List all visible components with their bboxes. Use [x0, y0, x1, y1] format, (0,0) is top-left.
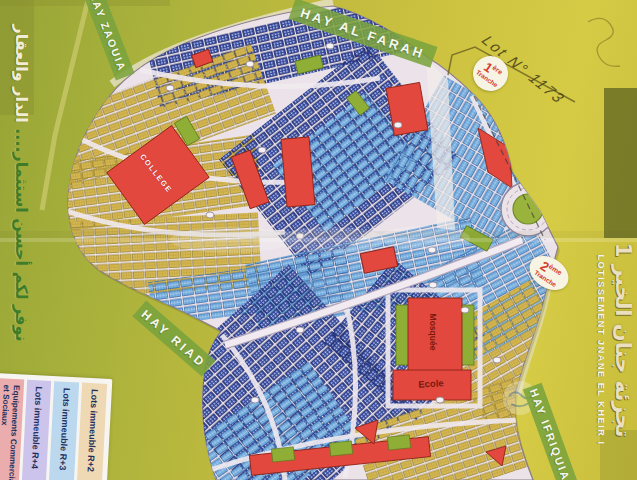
- legend-item-r4: Lots immeuble R+4: [21, 380, 52, 480]
- legend-item-r2: Lots immeuble R+2: [76, 383, 107, 480]
- map-title-arabic: تجزئة جنان الخير 1: [605, 200, 635, 480]
- folded-map-photo: HAY AL FARAH HAY ZAOUIA HAY RIAD HAY IFR…: [0, 0, 637, 480]
- legend-item-equipements: Equipements Commerciaux et Sociaux: [0, 378, 24, 480]
- edge-slogan: نوفر لكم أحسن استثمار.... الدار والعقار: [5, 0, 31, 369]
- legend-item-r3: Lots immeuble R+3: [48, 381, 79, 480]
- map-title-latin: LOTISSEMENT JNANE EL KHEIR I: [590, 230, 606, 470]
- watermark-band: [170, 226, 470, 253]
- roundabout: [501, 182, 555, 236]
- tranche2-ordinal: ème: [548, 262, 564, 276]
- slogan-investment-text: نوفر لكم أحسن استثمار....: [12, 128, 31, 341]
- map-legend: Lots immeuble R+2 Lots immeuble R+3 Lots…: [0, 373, 112, 480]
- slogan-company-name: الدار والعقار: [12, 24, 31, 122]
- mosque-label: Mosquée: [428, 302, 438, 362]
